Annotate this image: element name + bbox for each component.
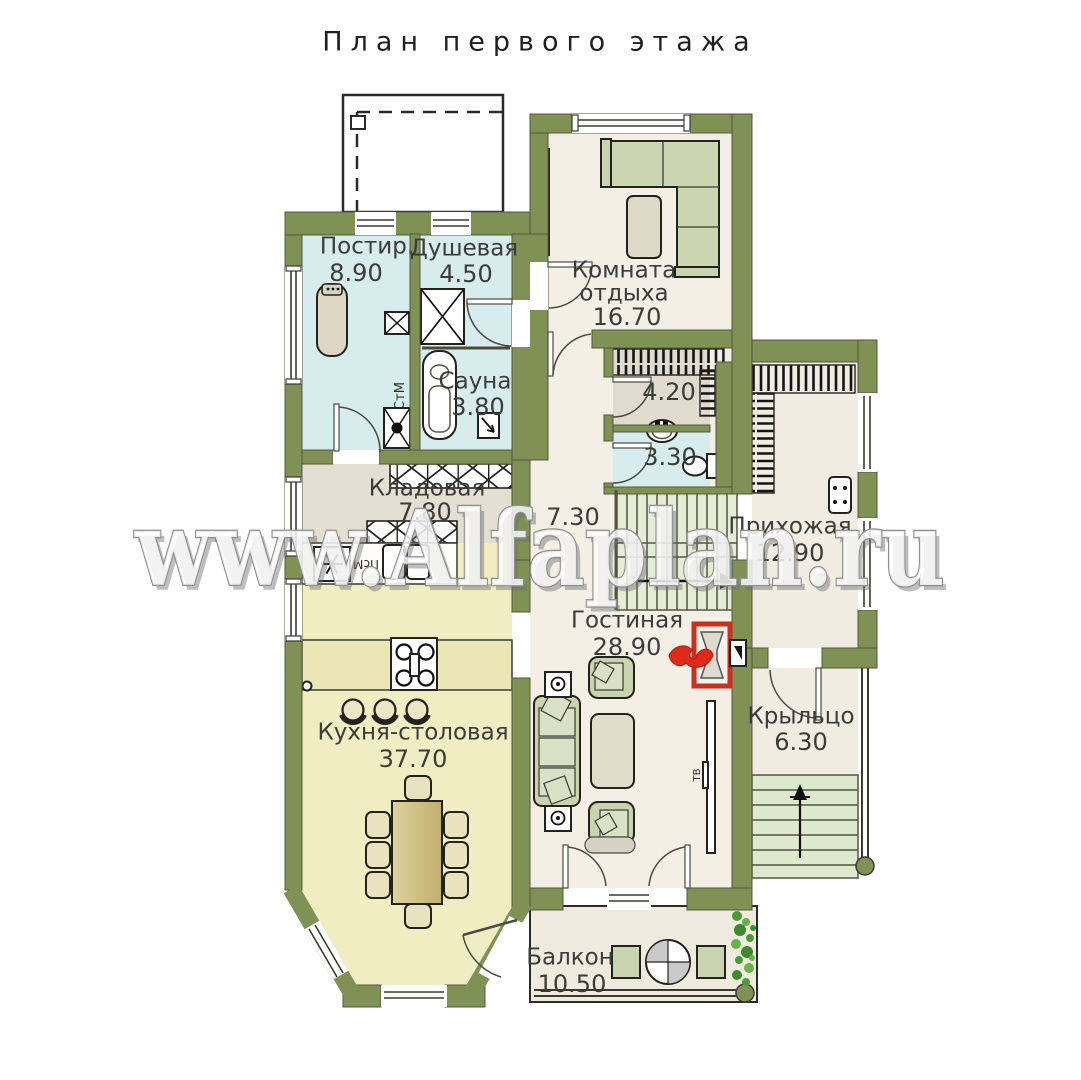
side-table-lamp-icon xyxy=(545,672,571,697)
wall-vent-icon xyxy=(730,640,746,666)
side-table-lamp-icon xyxy=(545,806,571,831)
armchair-icon xyxy=(589,657,634,698)
window xyxy=(607,888,651,910)
chair-icon xyxy=(444,842,468,868)
fridge-icon xyxy=(314,547,350,581)
floor-plan-drawing: ПсМ xyxy=(0,0,1081,1080)
bar-stool-icons xyxy=(341,700,429,724)
window xyxy=(285,477,302,556)
kitchen-island xyxy=(302,638,512,691)
balcony-chair-icon xyxy=(697,946,725,978)
window xyxy=(858,393,877,472)
window xyxy=(431,212,471,235)
shelf-box-icon xyxy=(385,312,409,334)
dishwasher-label: ПсМ xyxy=(353,557,379,571)
chair-icon xyxy=(444,872,468,898)
toilet-icon xyxy=(683,454,720,478)
chair-icon xyxy=(405,776,431,800)
floor-plan-page: ПсМ xyxy=(0,0,1081,1080)
chair-icon xyxy=(366,842,390,868)
coffee-table-icon xyxy=(627,196,661,258)
washing-machine-icon xyxy=(384,408,410,448)
canopy-outline xyxy=(343,95,503,212)
laundry-sink-icon xyxy=(317,284,347,356)
window xyxy=(355,212,396,235)
kitchen-counter: ПсМ xyxy=(302,543,457,584)
sauna-lounger-icon xyxy=(423,351,456,439)
tv-label: ТВ xyxy=(692,768,703,782)
kitchen-sink-icon xyxy=(383,545,429,579)
balcony-chair-icon xyxy=(612,946,640,978)
coffee-table-icon xyxy=(591,714,634,788)
window xyxy=(285,266,302,384)
cooktop-icon xyxy=(391,638,437,690)
chair-icon xyxy=(405,904,431,928)
chair-icon xyxy=(444,812,468,838)
chair-icon xyxy=(366,872,390,898)
window xyxy=(381,985,447,1007)
shower-tray-icon xyxy=(421,289,464,344)
sauna-heater-icon xyxy=(478,413,499,438)
window xyxy=(858,518,877,610)
sofa-icon xyxy=(534,691,580,806)
dining-table-icon xyxy=(392,801,442,904)
porch-steps xyxy=(752,775,858,878)
chair-icon xyxy=(366,812,390,838)
hall-bench-icon xyxy=(829,477,851,513)
balcony-table-icon xyxy=(646,940,690,984)
floor-porch xyxy=(752,668,858,775)
washing-machine-label: СтМ xyxy=(393,382,408,410)
window xyxy=(572,114,690,133)
bench-icon xyxy=(585,837,635,853)
window xyxy=(285,579,302,641)
staircase xyxy=(617,489,737,610)
